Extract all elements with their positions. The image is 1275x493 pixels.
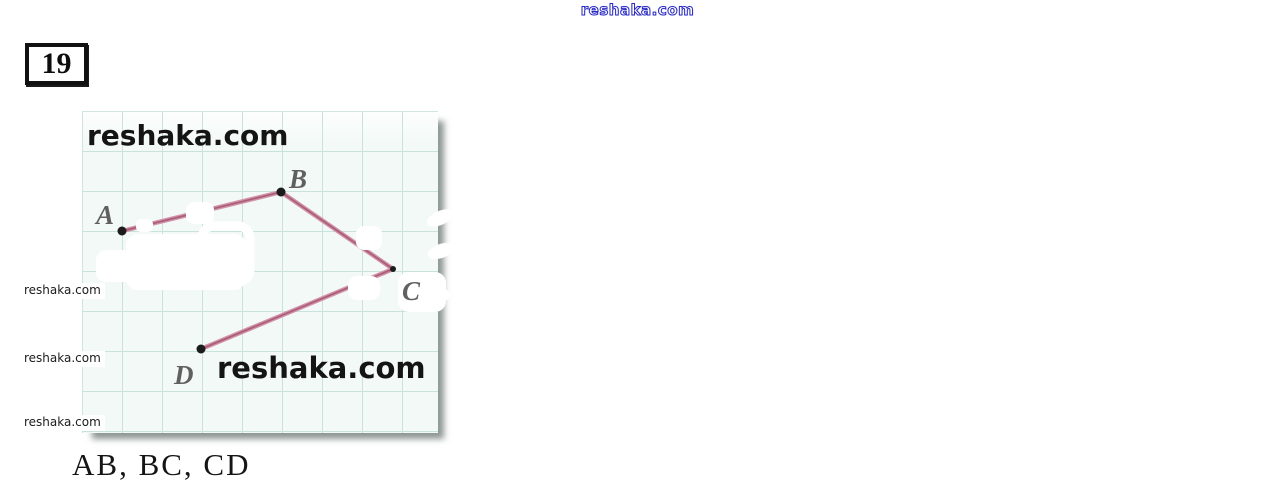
watermark-top: reshaka.com — [581, 1, 694, 19]
answer-text: AB, BC, CD — [72, 448, 250, 482]
page: reshaka.com 19 reshaka.com reshaka.com r… — [0, 0, 1275, 493]
watermark-grid-bottom: reshaka.com — [217, 354, 426, 383]
problem-number-box: 19 — [25, 43, 88, 85]
watermark-left-3: reshaka.com — [22, 415, 105, 431]
watermark-left-2: reshaka.com — [22, 351, 105, 367]
watermark-left-1: reshaka.com — [22, 283, 105, 299]
watermark-grid-top: reshaka.com — [87, 122, 288, 150]
problem-number: 19 — [42, 49, 72, 79]
